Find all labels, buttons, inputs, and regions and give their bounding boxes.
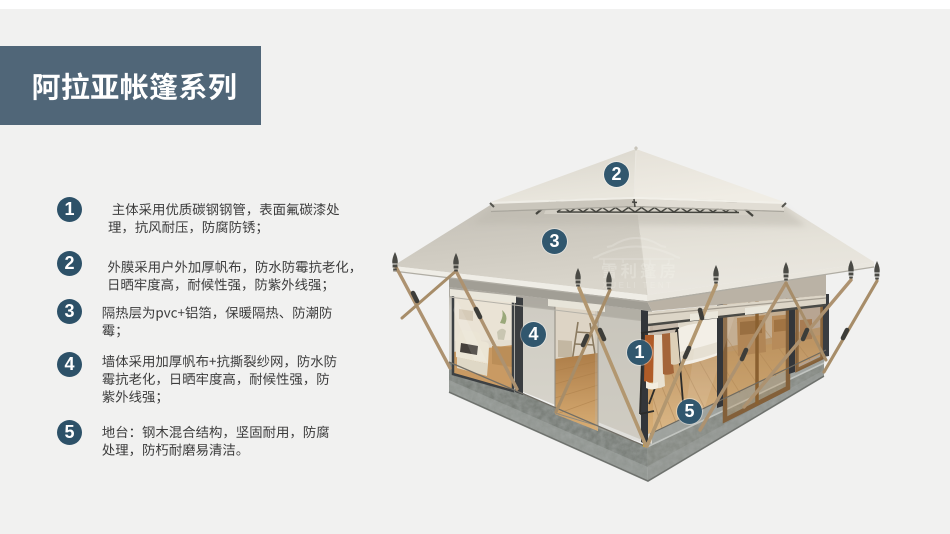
svg-text:XUELI TENT: XUELI TENT	[602, 281, 673, 290]
